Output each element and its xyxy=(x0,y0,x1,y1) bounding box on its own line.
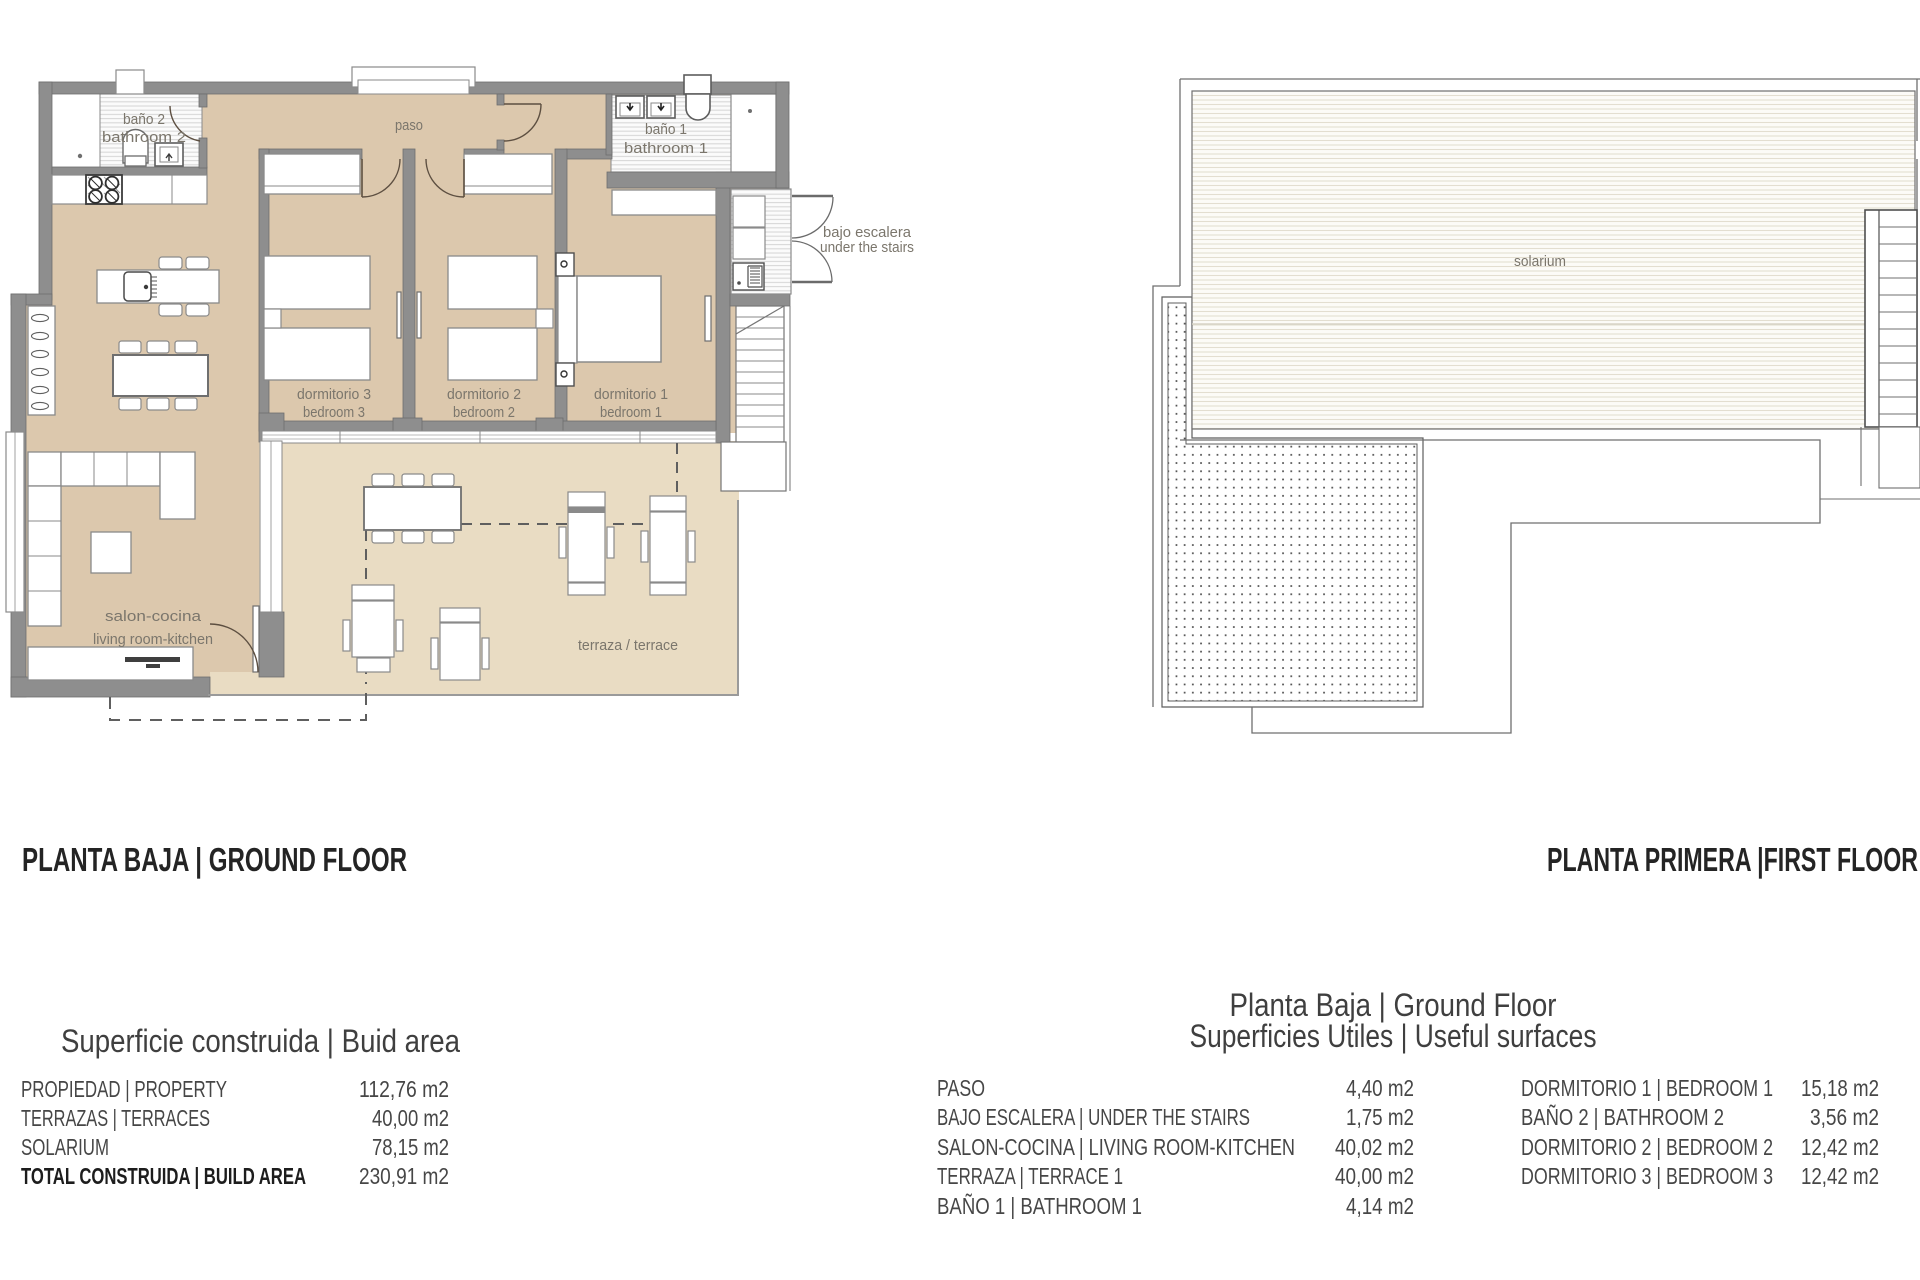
svg-text:bathroom 2: bathroom 2 xyxy=(102,130,186,146)
svg-text:living room-kitchen: living room-kitchen xyxy=(93,632,213,648)
svg-text:4,14 m2: 4,14 m2 xyxy=(1346,1193,1414,1219)
svg-text:dormitorio 3: dormitorio 3 xyxy=(297,387,371,403)
svg-text:4,40 m2: 4,40 m2 xyxy=(1346,1075,1414,1101)
svg-text:dormitorio 1: dormitorio 1 xyxy=(594,387,668,403)
svg-text:SALON-COCINA | LIVING ROOM-KIT: SALON-COCINA | LIVING ROOM-KITCHEN xyxy=(937,1134,1295,1160)
svg-text:bathroom 1: bathroom 1 xyxy=(624,141,708,157)
svg-text:BAÑO 1 | BATHROOM 1: BAÑO 1 | BATHROOM 1 xyxy=(937,1193,1142,1219)
svg-text:terraza / terrace: terraza / terrace xyxy=(578,638,678,654)
svg-text:TERRAZAS | TERRACES: TERRAZAS | TERRACES xyxy=(21,1105,210,1131)
svg-text:solarium: solarium xyxy=(1514,254,1566,270)
svg-text:PROPIEDAD | PROPERTY: PROPIEDAD | PROPERTY xyxy=(21,1076,227,1102)
svg-text:12,42 m2: 12,42 m2 xyxy=(1801,1163,1879,1189)
svg-text:40,00 m2: 40,00 m2 xyxy=(1335,1163,1414,1189)
svg-text:under the stairs: under the stairs xyxy=(820,240,914,256)
svg-text:15,18 m2: 15,18 m2 xyxy=(1801,1075,1879,1101)
svg-text:TERRAZA | TERRACE 1: TERRAZA | TERRACE 1 xyxy=(937,1163,1123,1189)
svg-text:PLANTA PRIMERA |FIRST FLOOR: PLANTA PRIMERA |FIRST FLOOR xyxy=(1547,841,1918,878)
svg-text:bedroom 3: bedroom 3 xyxy=(303,405,365,421)
svg-text:Superficies Utiles | Useful su: Superficies Utiles | Useful surfaces xyxy=(1190,1018,1597,1054)
svg-text:40,02 m2: 40,02 m2 xyxy=(1335,1134,1414,1160)
svg-text:bajo escalera: bajo escalera xyxy=(823,225,912,241)
svg-text:BAJO ESCALERA | UNDER THE STAI: BAJO ESCALERA | UNDER THE STAIRS xyxy=(937,1104,1250,1130)
svg-text:112,76 m2: 112,76 m2 xyxy=(359,1076,449,1102)
svg-text:PLANTA BAJA | GROUND FLOOR: PLANTA BAJA | GROUND FLOOR xyxy=(22,841,407,878)
svg-text:DORMITORIO 3 | BEDROOM 3: DORMITORIO 3 | BEDROOM 3 xyxy=(1521,1163,1773,1189)
svg-text:Superficie construida | Buid a: Superficie construida | Buid area xyxy=(61,1023,460,1059)
svg-text:78,15 m2: 78,15 m2 xyxy=(372,1134,449,1160)
svg-text:paso: paso xyxy=(395,118,423,134)
svg-text:bedroom 2: bedroom 2 xyxy=(453,405,515,421)
svg-text:DORMITORIO 1 | BEDROOM 1: DORMITORIO 1 | BEDROOM 1 xyxy=(1521,1075,1773,1101)
svg-text:salon-cocina: salon-cocina xyxy=(105,609,202,625)
svg-text:PASO: PASO xyxy=(937,1075,985,1101)
svg-text:TOTAL CONSTRUIDA | BUILD AREA: TOTAL CONSTRUIDA | BUILD AREA xyxy=(21,1163,306,1189)
svg-text:SOLARIUM: SOLARIUM xyxy=(21,1134,109,1160)
svg-text:baño 1: baño 1 xyxy=(645,122,687,138)
svg-text:230,91 m2: 230,91 m2 xyxy=(359,1163,449,1189)
svg-text:3,56 m2: 3,56 m2 xyxy=(1810,1104,1879,1130)
svg-text:BAÑO 2 | BATHROOM 2: BAÑO 2 | BATHROOM 2 xyxy=(1521,1104,1724,1130)
svg-text:DORMITORIO 2 | BEDROOM 2: DORMITORIO 2 | BEDROOM 2 xyxy=(1521,1134,1773,1160)
svg-text:12,42 m2: 12,42 m2 xyxy=(1801,1134,1879,1160)
svg-text:1,75 m2: 1,75 m2 xyxy=(1346,1104,1414,1130)
svg-text:40,00 m2: 40,00 m2 xyxy=(372,1105,449,1131)
svg-text:baño 2: baño 2 xyxy=(123,112,165,128)
svg-text:dormitorio 2: dormitorio 2 xyxy=(447,387,521,403)
svg-text:bedroom 1: bedroom 1 xyxy=(600,405,662,421)
